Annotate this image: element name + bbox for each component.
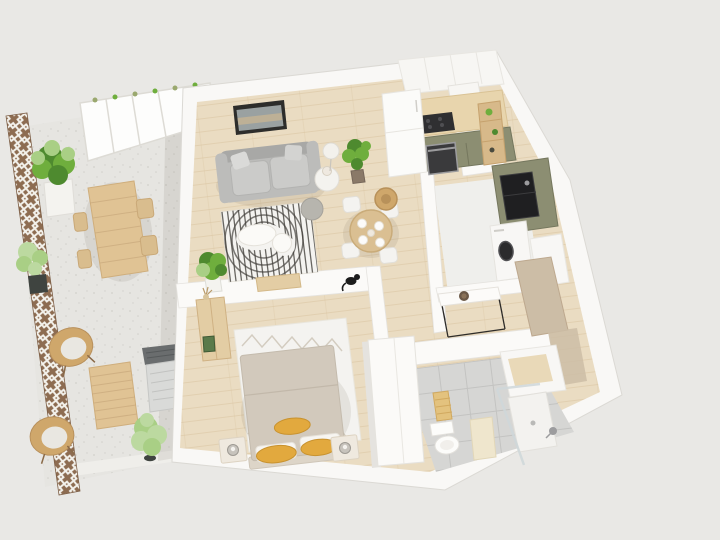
beige-bath-mat [470,417,496,460]
plant-foliage [351,158,363,170]
outdoor-chair [73,212,88,231]
outdoor-chair [136,198,154,219]
burner [426,119,430,123]
plant-pot [351,170,365,184]
bush-foliage [143,438,161,456]
plant-foliage [28,262,42,276]
hedge-tuft [173,86,178,91]
pouf [301,198,323,220]
floorplan-render [0,0,720,540]
plant-foliage [48,165,68,185]
throw-pillow [284,145,302,161]
green-picture-frame [203,336,215,352]
plate [375,222,384,231]
plate [358,219,367,228]
hedge-tuft [113,95,118,100]
plant-foliage [196,263,210,277]
plate [359,236,368,245]
plate [376,238,385,247]
toilet-tank [430,421,454,436]
plant-foliage [44,140,60,156]
shelf-bottle [490,148,495,153]
sphere-floor-lamp [323,143,339,159]
rattan-pendant-center [381,194,391,204]
washer-panel [494,230,504,231]
burner [440,123,444,127]
faucet [525,181,530,186]
slatted-coffee-table [89,362,138,429]
center-bowl [368,230,375,237]
hedge-tuft [133,92,138,97]
organic-coffee-table-lobe [273,234,292,253]
outdoor-chair [140,235,158,256]
wall-art [233,100,287,135]
plant-foliage [361,141,371,151]
dark-planter [28,274,48,294]
shelf-plant [492,129,498,135]
plant-foliage [61,147,75,161]
lamp-highlight [343,445,347,449]
vanity-counter [508,354,553,386]
hedge-tuft [93,98,98,103]
plant-foliage [215,264,227,276]
shelf-plant [486,109,493,116]
shower-drain [531,421,536,426]
fridge-handle [416,100,417,112]
outdoor-chair [77,249,92,268]
burner [438,117,442,121]
table-top [89,362,138,429]
decor-bowl-inner [461,293,466,298]
burner [428,125,432,129]
lamp-highlight [231,447,235,451]
dining-chair [342,196,361,213]
bush-foliage [140,413,154,427]
cat-head [354,274,360,280]
wardrobe [368,336,424,466]
hedge-tuft [153,89,158,94]
plant-foliage [31,151,45,165]
vase [203,294,209,300]
